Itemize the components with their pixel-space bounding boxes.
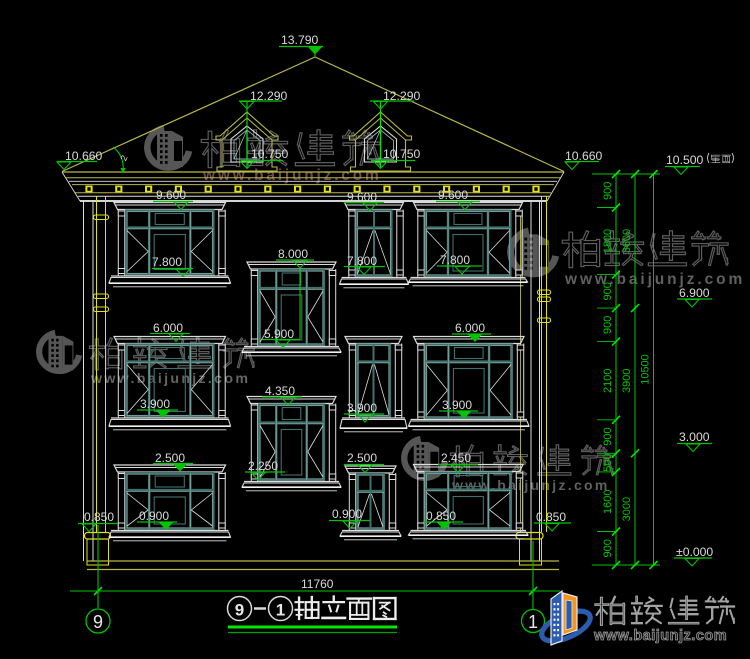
svg-text:3600: 3600 bbox=[621, 229, 633, 253]
svg-text:10.750: 10.750 bbox=[251, 147, 288, 161]
svg-text:7.800: 7.800 bbox=[440, 253, 470, 267]
svg-text:0.850: 0.850 bbox=[536, 510, 566, 524]
svg-text:4.350: 4.350 bbox=[265, 384, 295, 398]
svg-text:0.900: 0.900 bbox=[139, 509, 169, 523]
svg-text:8.000: 8.000 bbox=[278, 247, 308, 261]
svg-text:11760: 11760 bbox=[301, 577, 334, 591]
svg-text:6.900: 6.900 bbox=[679, 286, 710, 300]
svg-text:7.800: 7.800 bbox=[152, 255, 182, 269]
svg-text:10500: 10500 bbox=[640, 354, 652, 385]
svg-text:500: 500 bbox=[602, 453, 614, 471]
svg-text:9: 9 bbox=[235, 601, 244, 620]
svg-text:1: 1 bbox=[276, 601, 285, 620]
svg-text:3900: 3900 bbox=[621, 368, 633, 392]
svg-text:2.250: 2.250 bbox=[248, 459, 278, 473]
svg-text:9.600: 9.600 bbox=[438, 188, 468, 202]
svg-text:900: 900 bbox=[602, 182, 614, 200]
svg-text:±0.000: ±0.000 bbox=[676, 545, 713, 559]
svg-text:1800: 1800 bbox=[602, 229, 614, 253]
svg-text:1600: 1600 bbox=[602, 489, 614, 513]
svg-text:0.900: 0.900 bbox=[332, 507, 362, 521]
svg-text:10.750: 10.750 bbox=[383, 147, 420, 161]
svg-text:10.500: 10.500 bbox=[666, 153, 703, 167]
svg-text:0.850: 0.850 bbox=[426, 509, 456, 523]
svg-text:900: 900 bbox=[602, 539, 614, 557]
svg-text:3.900: 3.900 bbox=[347, 401, 377, 415]
svg-text:2.500: 2.500 bbox=[347, 451, 377, 465]
svg-text:9.600: 9.600 bbox=[156, 188, 186, 202]
svg-text:www.baijunjz.com: www.baijunjz.com bbox=[564, 271, 745, 288]
svg-text:3.900: 3.900 bbox=[140, 397, 170, 411]
svg-text:3.900: 3.900 bbox=[442, 398, 472, 412]
svg-text:900: 900 bbox=[602, 282, 614, 300]
svg-text:www.baijunjz.com: www.baijunjz.com bbox=[90, 371, 250, 387]
svg-text:6.000: 6.000 bbox=[455, 321, 485, 335]
svg-text:www.baijunjz.com: www.baijunjz.com bbox=[593, 628, 727, 644]
svg-text:3000: 3000 bbox=[621, 497, 633, 521]
svg-text:9: 9 bbox=[93, 612, 103, 632]
svg-text:900: 900 bbox=[602, 427, 614, 445]
svg-text:2.450: 2.450 bbox=[441, 451, 471, 465]
svg-text:1: 1 bbox=[528, 612, 538, 632]
svg-text:0.850: 0.850 bbox=[84, 510, 114, 524]
svg-text:2100: 2100 bbox=[602, 368, 614, 392]
svg-text:13.790: 13.790 bbox=[281, 33, 318, 47]
svg-text:900: 900 bbox=[602, 316, 614, 334]
svg-text:3.000: 3.000 bbox=[679, 430, 710, 444]
